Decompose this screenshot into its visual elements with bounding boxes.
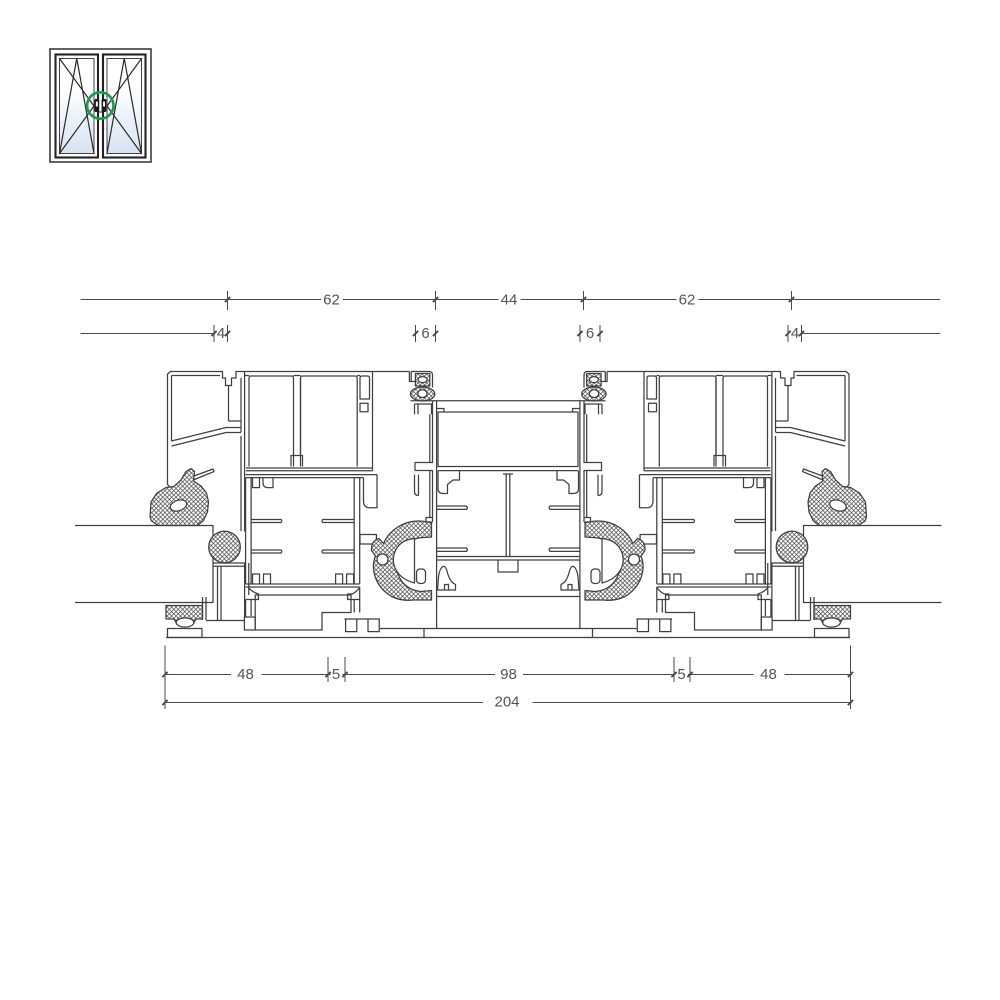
- svg-text:44: 44: [501, 292, 518, 309]
- svg-text:62: 62: [679, 292, 696, 309]
- svg-text:6: 6: [421, 325, 429, 342]
- svg-text:4: 4: [217, 325, 225, 342]
- svg-text:98: 98: [500, 666, 517, 683]
- svg-text:62: 62: [323, 292, 340, 309]
- svg-text:5: 5: [677, 666, 685, 683]
- svg-text:5: 5: [332, 666, 340, 683]
- svg-text:204: 204: [494, 694, 519, 711]
- svg-text:6: 6: [586, 325, 594, 342]
- svg-text:48: 48: [760, 666, 777, 683]
- svg-text:4: 4: [791, 325, 799, 342]
- svg-text:48: 48: [237, 666, 254, 683]
